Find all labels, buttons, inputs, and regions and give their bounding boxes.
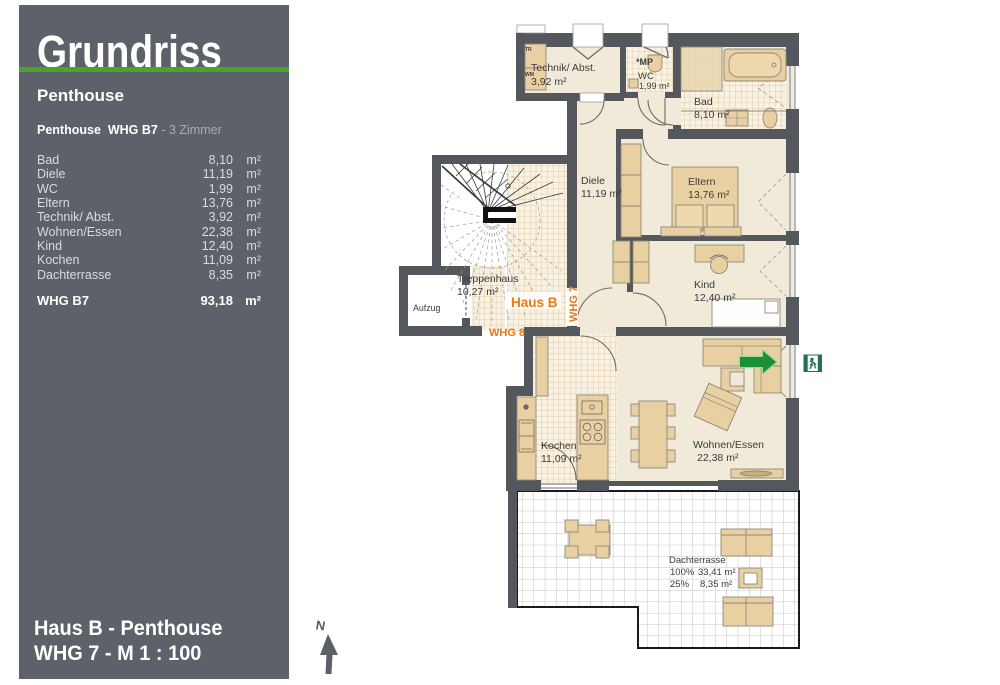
svg-text:Haus B: Haus B xyxy=(511,295,558,310)
svg-text:WHG 8: WHG 8 xyxy=(489,327,525,339)
svg-text:11,19 m²: 11,19 m² xyxy=(581,188,622,200)
svg-text:Kochen: Kochen xyxy=(541,440,577,452)
svg-text:Wohnen/Essen: Wohnen/Essen xyxy=(693,439,764,451)
svg-text:Technik/ Abst.: Technik/ Abst. xyxy=(531,62,596,74)
svg-text:Bad: Bad xyxy=(694,96,713,108)
svg-text:N: N xyxy=(315,617,326,633)
svg-text:Treppenhaus: Treppenhaus xyxy=(457,273,519,285)
svg-text:8,35 m²: 8,35 m² xyxy=(700,579,732,590)
svg-text:Dachterrasse: Dachterrasse xyxy=(669,555,726,566)
svg-text:12,40 m²: 12,40 m² xyxy=(694,292,736,304)
svg-text:25%: 25% xyxy=(670,579,690,590)
svg-text:Kind: Kind xyxy=(694,279,715,291)
svg-text:10,27 m²: 10,27 m² xyxy=(457,286,499,298)
svg-text:33,41 m²: 33,41 m² xyxy=(698,567,736,578)
svg-text:Eltern: Eltern xyxy=(688,176,716,188)
svg-text:22,38 m²: 22,38 m² xyxy=(697,452,739,464)
svg-text:Diele: Diele xyxy=(581,175,605,187)
svg-text:100%: 100% xyxy=(670,567,695,578)
svg-text:TR: TR xyxy=(525,47,532,53)
svg-text:8,10 m²: 8,10 m² xyxy=(694,109,730,121)
svg-text:3,92 m²: 3,92 m² xyxy=(531,76,567,88)
svg-text:WM: WM xyxy=(525,72,534,78)
svg-text:1,99 m²: 1,99 m² xyxy=(639,81,670,91)
svg-text:13,76 m²: 13,76 m² xyxy=(688,189,730,201)
svg-text:Aufzug: Aufzug xyxy=(413,303,440,313)
svg-text:WHG 7: WHG 7 xyxy=(568,286,580,322)
svg-text:*MP: *MP xyxy=(636,57,653,67)
svg-text:11,09 m²: 11,09 m² xyxy=(541,453,582,465)
